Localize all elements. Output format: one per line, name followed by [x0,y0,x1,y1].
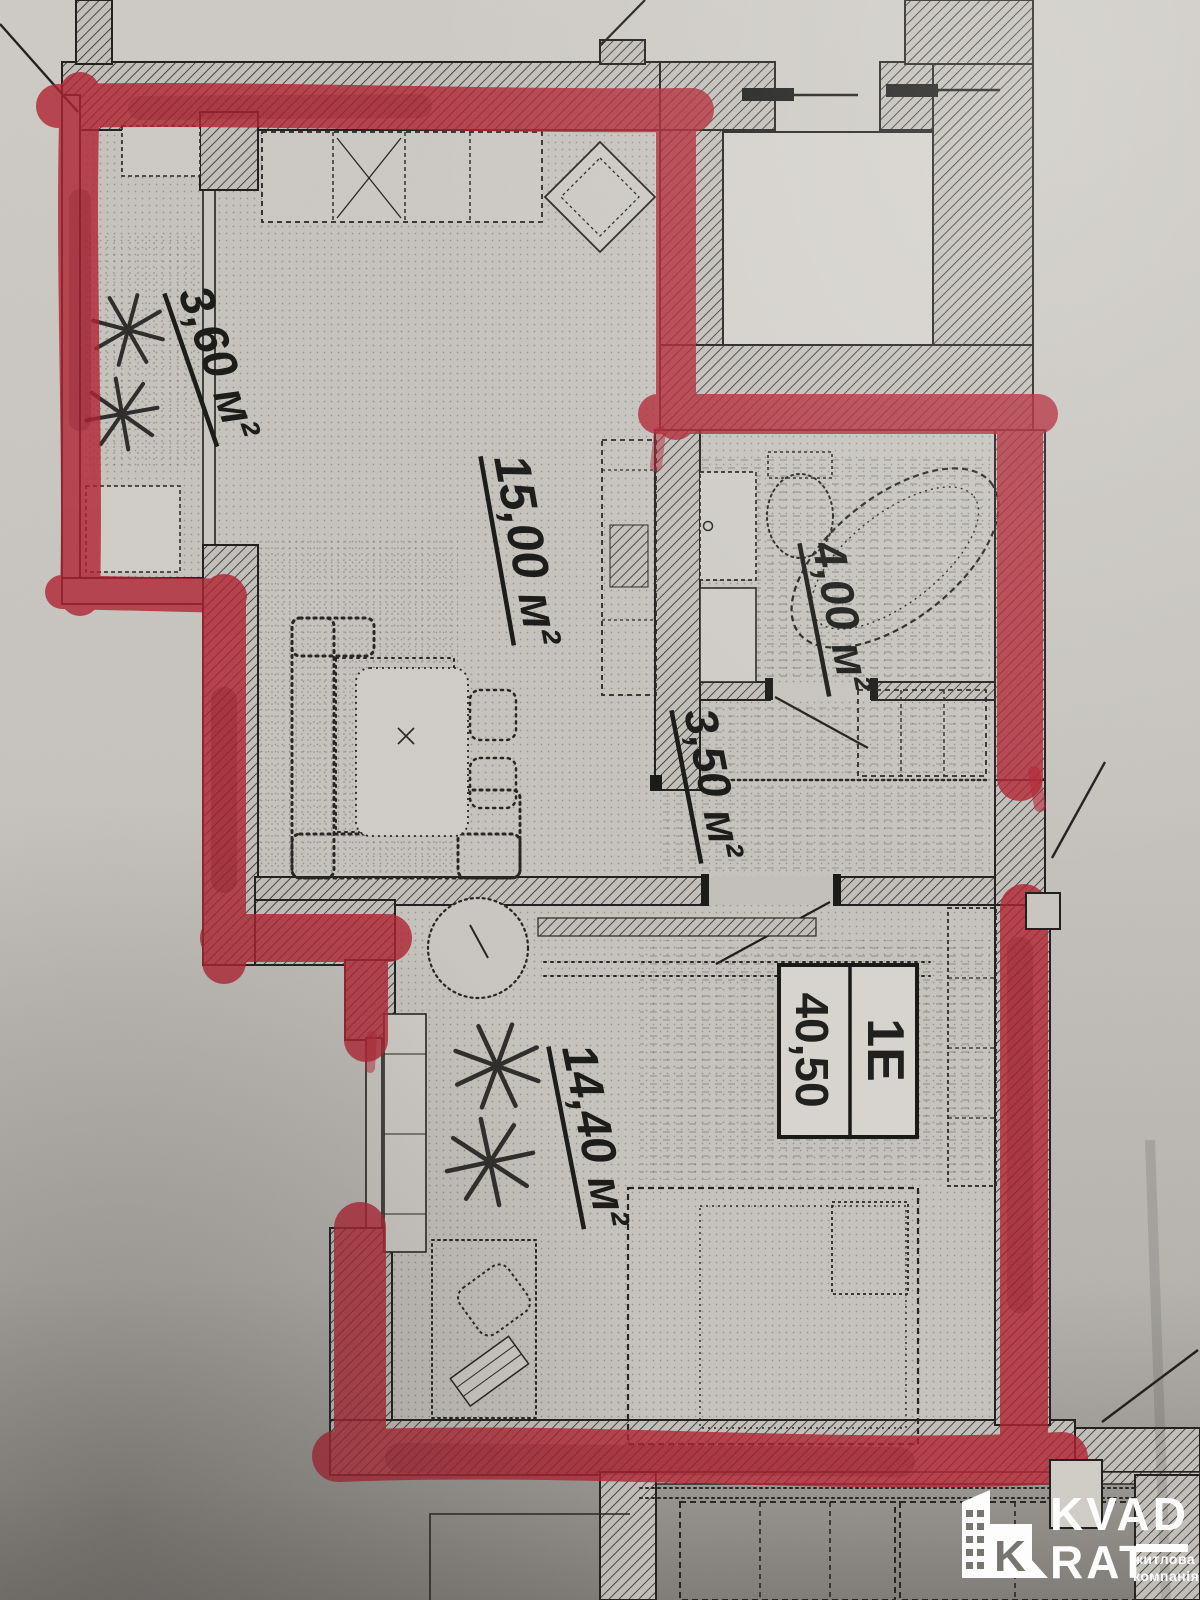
photo-grain [0,0,1200,1600]
floor-plan-photo: 3,60 м² 15,00 м² 4,00 м² 3,50 м² 14,40 м… [0,0,1200,1600]
floor-plan-svg: 3,60 м² 15,00 м² 4,00 м² 3,50 м² 14,40 м… [0,0,1200,1600]
